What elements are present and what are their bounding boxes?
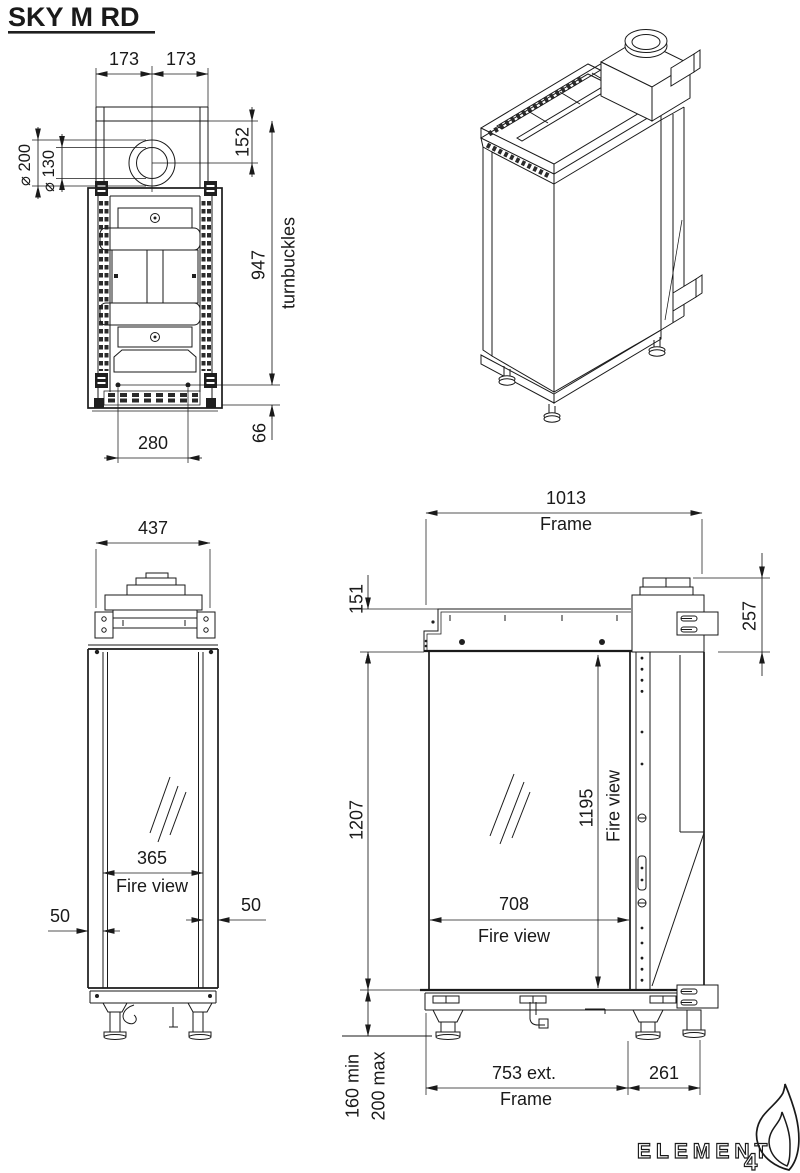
dim-50-right: 50 [241, 895, 261, 915]
dim-365: 365 [137, 848, 167, 868]
front-view: 437 365 Fire view 50 50 [48, 518, 266, 1040]
frame-label-bottom: Frame [500, 1089, 552, 1109]
dim-280: 280 [138, 433, 168, 453]
frame-label-top: Frame [540, 514, 592, 534]
side-view: 1013 Frame 151 1207 160 min 200 max 257 … [342, 488, 770, 1121]
dim-152: 152 [232, 127, 252, 157]
dim-151: 151 [346, 584, 366, 614]
dim-dia-200: ⌀ 200 [16, 144, 34, 186]
dim-173-right: 173 [166, 49, 196, 69]
element4-logo: ELEMENT 4 [637, 1084, 799, 1173]
dim-753-ext: 753 ext. [492, 1063, 556, 1083]
dim-160-min: 160 min [342, 1054, 362, 1118]
dim-200-max: 200 max [368, 1051, 388, 1120]
turnbuckles-label: turnbuckles [278, 217, 298, 309]
page-title: SKY M RD [8, 2, 140, 32]
dim-257: 257 [739, 601, 759, 631]
dim-261: 261 [649, 1063, 679, 1083]
dim-66: 66 [249, 423, 269, 443]
dim-1013: 1013 [546, 488, 586, 508]
fire-view-label-front: Fire view [116, 876, 189, 896]
drawing-page: SKY M RD [0, 0, 800, 1173]
dim-dia-130: ⌀ 130 [40, 150, 58, 192]
dim-947: 947 [248, 250, 268, 280]
page-title-group: SKY M RD [8, 2, 155, 34]
dim-437: 437 [138, 518, 168, 538]
fire-view-label-vertical: Fire view [603, 769, 623, 842]
dim-1195: 1195 [576, 789, 596, 828]
title-underline [8, 31, 155, 34]
dim-1207: 1207 [346, 800, 366, 840]
dim-173-left: 173 [109, 49, 139, 69]
dim-708: 708 [499, 894, 529, 914]
logo-number: 4 [744, 1149, 758, 1173]
fire-view-label-bottom: Fire view [478, 926, 551, 946]
isometric-view [481, 30, 702, 423]
dim-50-left: 50 [50, 906, 70, 926]
plan-view: 173 173 152 ⌀ 200 ⌀ 130 947 turnbuckles … [16, 49, 299, 463]
